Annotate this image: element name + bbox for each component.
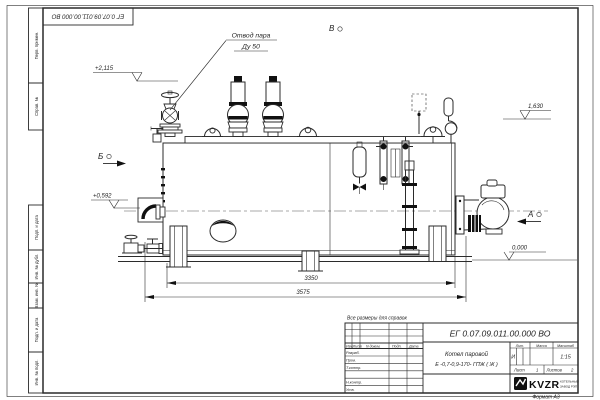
- burner: [456, 180, 509, 234]
- corner-stamp: ЕГ 0.07.09.011.00.000 ВО: [43, 8, 133, 25]
- steam-outlet-valve: [158, 91, 182, 137]
- dim-3350-text: 3350: [304, 276, 318, 282]
- col-podp: Подп.: [392, 344, 402, 348]
- lifting-lug-right: [297, 127, 319, 136]
- elev-1630-text: 1,630: [528, 104, 544, 110]
- margin-label-podp-data-1: Подп. и дата: [34, 214, 39, 239]
- support-front: [166, 226, 191, 267]
- product-name-line1: Котел паровой: [445, 351, 489, 358]
- view-b-left-letter: Б: [98, 152, 103, 161]
- dim-3575-text: 3575: [296, 290, 310, 296]
- lit-label: Лит.: [515, 344, 524, 348]
- sheet-value: 1: [536, 368, 538, 373]
- lifting-lug-left: [202, 128, 223, 137]
- support-rear: [429, 226, 446, 262]
- sheets-value: 2: [570, 368, 574, 373]
- corner-stamp-number: ЕГ 0.07.09.011.00.000 ВО: [52, 12, 125, 19]
- format-label: Формат А3: [532, 395, 560, 400]
- company-logo: KVZR КОТЕЛЬНЫЙ ЗАВОД РЭП: [514, 377, 579, 391]
- brand-sub-line1: КОТЕЛЬНЫЙ: [560, 380, 579, 384]
- elevation-0000: 0,000: [504, 246, 546, 261]
- product-name-line2: Е -0,7-0,9-170- ГПЖ ( Ж ): [435, 362, 498, 368]
- drain-valve: [147, 239, 163, 254]
- col-list: Лист: [352, 344, 362, 348]
- safety-valve-2: [263, 76, 284, 137]
- sheet-label: Лист: [513, 368, 525, 373]
- margin-label-inv-podl: Инв. № подл.: [34, 359, 39, 385]
- steam-callout: Отвод пара Ду 50: [170, 32, 277, 111]
- support-middle: [298, 251, 323, 271]
- view-marker-a-right: А: [517, 210, 541, 225]
- manhole: [210, 220, 236, 242]
- corner-tap: [151, 127, 163, 143]
- drawing-canvas: Перв. примен. Справ. № Подп. и дата Инв.…: [0, 0, 600, 400]
- col-data: Дата: [408, 344, 418, 348]
- margin-label-vzam-inv: Взам. инв. №: [34, 282, 39, 308]
- row-prov: Пров.: [346, 358, 356, 362]
- scale-label: Масштаб: [557, 344, 575, 348]
- doc-number: ЕГ 0.07.09.011.00.000 ВО: [450, 329, 551, 339]
- margin-stamps: Перв. примен. Справ. № Подп. и дата Инв.…: [29, 8, 44, 393]
- water-column-vessel: [353, 142, 366, 194]
- top-right-fittings: [412, 94, 457, 143]
- view-marker-b-left: Б: [98, 152, 126, 167]
- blowdown-elbow: [138, 198, 165, 222]
- margin-label-perv-primen: Перв. примен.: [34, 32, 39, 60]
- elevation-0592: +0,592: [91, 194, 140, 209]
- col-doc: N докум.: [366, 344, 381, 348]
- row-utv: Утв.: [346, 388, 355, 392]
- sheets-label: Листов: [546, 368, 563, 373]
- margin-label-inv-dubl: Инв. № дубл.: [34, 254, 39, 280]
- water-level-gauge: [376, 137, 413, 190]
- brand-sub-line2: ЗАВОД РЭП: [560, 385, 577, 389]
- scale-value: 1:15: [560, 355, 571, 361]
- elevation-1630: 1,630: [503, 104, 551, 119]
- view-marker-b-top: В: [329, 24, 342, 33]
- mass-label: Масса: [536, 344, 547, 348]
- lit-value: И: [511, 355, 515, 361]
- reference-note: Все размеры для справок: [347, 316, 408, 322]
- elev-0592-text: +0,592: [93, 194, 112, 200]
- title-block: Все размеры для справок Изм. Лист N доку…: [345, 316, 579, 400]
- boiler-shell: [161, 137, 455, 256]
- row-tkontr: Т.контр.: [346, 366, 361, 370]
- row-nkontr: Н.контр.: [346, 381, 362, 385]
- drawing-sheet: Перв. примен. Справ. № Подп. и дата Инв.…: [0, 0, 600, 400]
- elev-0000-text: 0,000: [512, 246, 528, 252]
- elev-2115-text: +2,115: [95, 66, 114, 72]
- view-b-letter: В: [329, 24, 335, 33]
- callout-text-line2: Ду 50: [241, 44, 260, 51]
- callout-text-line1: Отвод пара: [232, 32, 271, 40]
- view-a-letter: А: [527, 210, 533, 219]
- safety-valve-1: [228, 76, 249, 137]
- brand-text: KVZR: [529, 379, 560, 391]
- row-razrab: Разраб.: [346, 351, 360, 355]
- elevation-2115: +2,115: [93, 66, 178, 81]
- margin-label-sprav-no: Справ. №: [34, 96, 39, 116]
- margin-label-podp-data-2: Подп. и дата: [34, 317, 39, 342]
